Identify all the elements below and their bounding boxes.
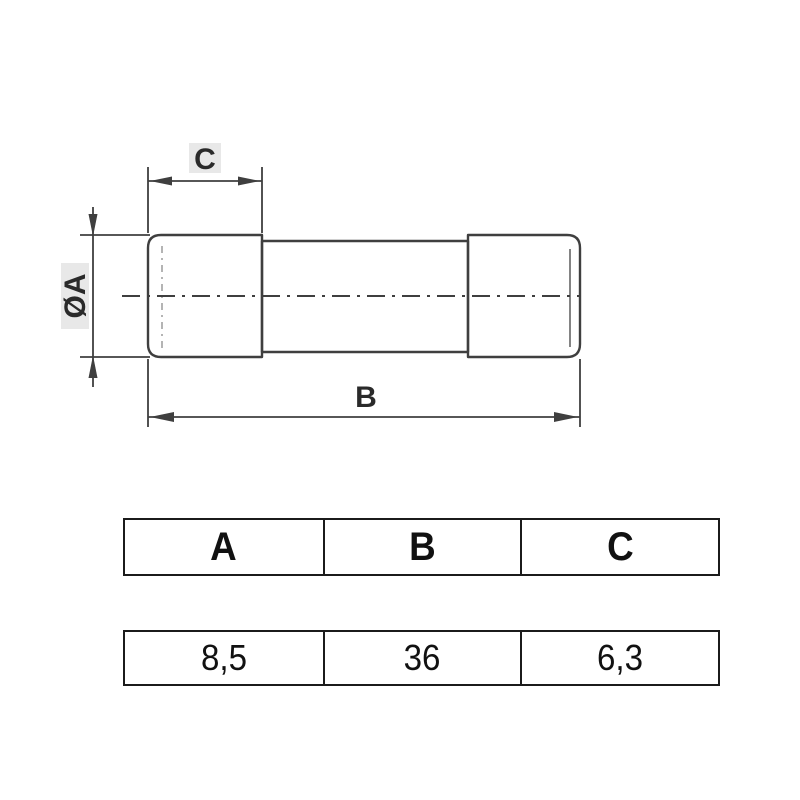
dimension-c: C <box>148 143 262 233</box>
table-value-b: 36 <box>323 632 521 684</box>
table-header-a: A <box>125 520 323 574</box>
dim-b-arrow-left <box>150 412 174 422</box>
table-header-b: B <box>323 520 521 574</box>
dimension-header-table: A B C <box>123 518 720 576</box>
dim-a-arrow-bottom <box>89 356 98 379</box>
dim-a-arrow-top <box>89 214 98 237</box>
fuse-part-outline <box>122 235 580 357</box>
table-value-a: 8,5 <box>125 632 323 684</box>
dim-a-label: ØA <box>59 274 92 319</box>
dimension-b: B <box>148 359 580 427</box>
dimension-value-table: 8,5 36 6,3 <box>123 630 720 686</box>
dim-b-label: B <box>355 381 377 414</box>
dim-c-arrow-left <box>150 177 172 186</box>
page-background: C ØA B A B C <box>0 0 800 800</box>
dim-b-arrow-right <box>554 412 578 422</box>
table-header-c: C <box>520 520 718 574</box>
dim-c-arrow-right <box>238 177 260 186</box>
fuse-technical-drawing: C ØA B <box>0 0 800 470</box>
table-value-c: 6,3 <box>520 632 718 684</box>
dim-c-label: C <box>194 143 216 176</box>
